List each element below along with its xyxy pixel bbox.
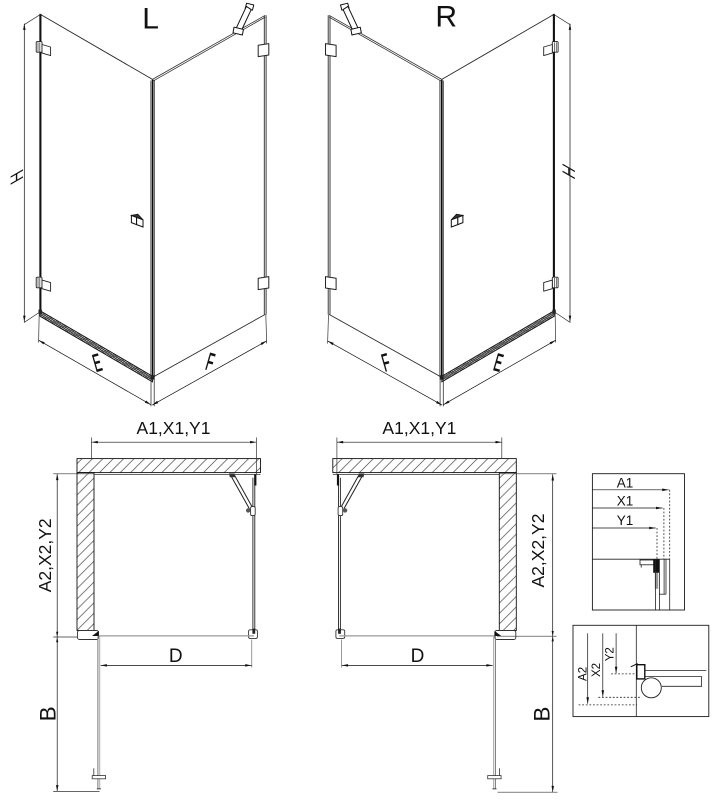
svg-text:B: B (35, 706, 60, 721)
svg-text:A2,X2,Y2: A2,X2,Y2 (528, 514, 548, 588)
svg-text:A1,X1,Y1: A1,X1,Y1 (382, 418, 456, 438)
svg-text:A1,X1,Y1: A1,X1,Y1 (137, 418, 211, 438)
svg-text:R: R (435, 0, 457, 33)
svg-text:L: L (142, 3, 159, 36)
svg-text:Y1: Y1 (617, 513, 634, 528)
svg-text:D: D (169, 646, 183, 667)
svg-text:Y2: Y2 (604, 647, 616, 661)
svg-text:A1: A1 (617, 475, 634, 490)
svg-text:X1: X1 (617, 494, 634, 509)
svg-text:D: D (411, 646, 425, 667)
svg-text:X2: X2 (591, 663, 603, 677)
svg-text:A2,X2,Y2: A2,X2,Y2 (35, 518, 55, 592)
svg-text:B: B (530, 707, 555, 722)
